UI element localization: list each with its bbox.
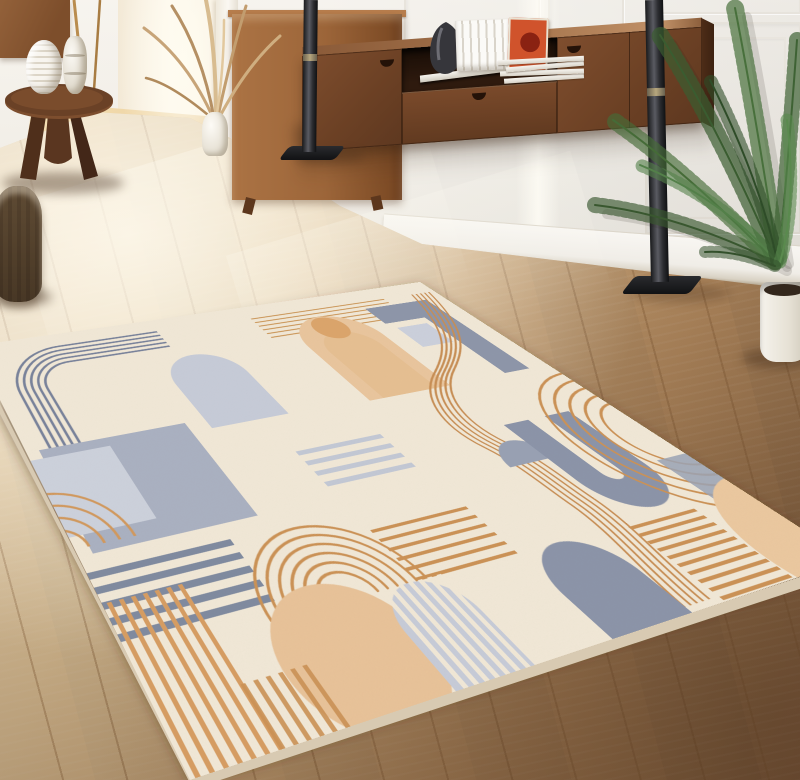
slim-vase [202, 112, 228, 156]
totem-vase [63, 36, 87, 94]
pole-joint-band [303, 54, 317, 61]
ribbed-vase [26, 40, 62, 94]
living-room-scene [0, 0, 800, 780]
pole-stand-left [302, 0, 318, 152]
drawer-handle-notch [472, 92, 486, 100]
door-handle-notch [567, 46, 581, 54]
door-handle-notch [380, 59, 394, 67]
magazine-stack [498, 58, 588, 88]
stump-stool [0, 186, 42, 302]
palm-plant [585, 0, 800, 380]
side-table [2, 80, 122, 195]
